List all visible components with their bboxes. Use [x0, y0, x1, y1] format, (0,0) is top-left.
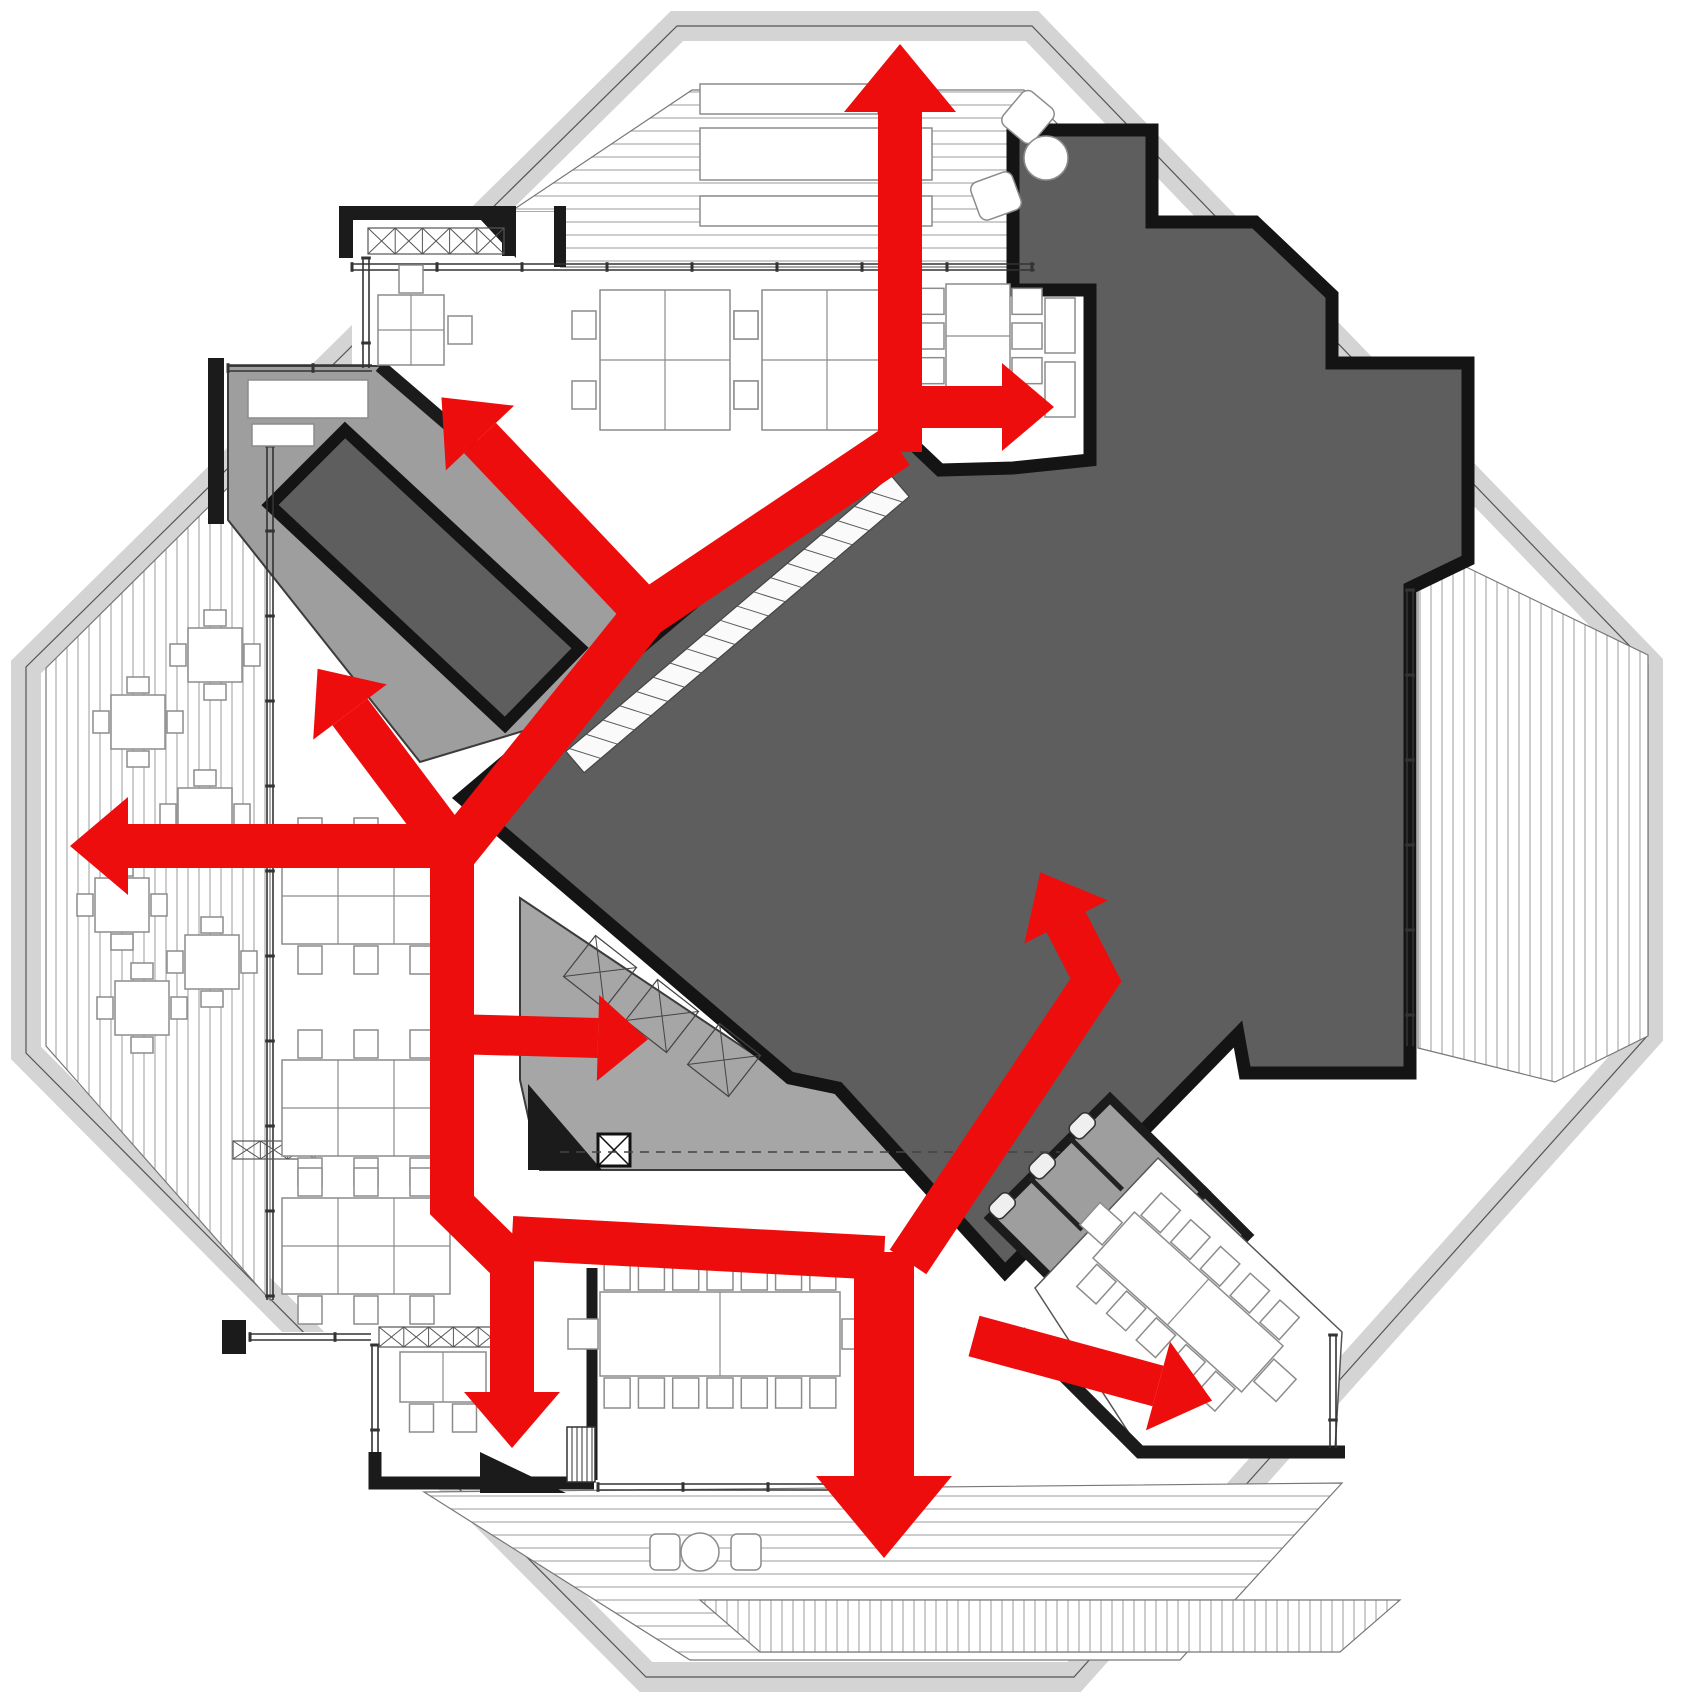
- desk: [252, 424, 314, 446]
- chair: [734, 381, 758, 409]
- desks-north-1: [572, 290, 758, 430]
- chair: [399, 265, 423, 293]
- floor-plan-canvas: [0, 0, 1700, 1701]
- chair: [298, 1168, 322, 1196]
- chair: [448, 316, 472, 344]
- chair: [354, 1296, 378, 1324]
- chair: [131, 963, 153, 979]
- chair: [204, 684, 226, 700]
- chair: [97, 997, 113, 1019]
- chair: [568, 1319, 598, 1349]
- chair: [734, 311, 758, 339]
- chair: [298, 1030, 322, 1058]
- chair: [167, 711, 183, 733]
- chair: [204, 610, 226, 626]
- terrace-south-lower-strip: [700, 1600, 1400, 1652]
- chair: [234, 804, 250, 826]
- chair: [131, 1037, 153, 1053]
- chair: [638, 1378, 664, 1408]
- terrace-west: [46, 446, 270, 1300]
- chair: [354, 946, 378, 974]
- chair: [1012, 323, 1042, 349]
- chair: [707, 1378, 733, 1408]
- flow-trunk-south-corridor: [512, 1238, 884, 1258]
- chair: [298, 946, 322, 974]
- chair: [298, 1296, 322, 1324]
- chair: [170, 644, 186, 666]
- chair: [410, 1296, 434, 1324]
- chair: [201, 991, 223, 1007]
- chair: [171, 997, 187, 1019]
- stair-south-exit: [567, 1427, 595, 1482]
- chair: [241, 951, 257, 973]
- chair: [673, 1378, 699, 1408]
- desks-west-2: [282, 1030, 450, 1186]
- lounge-table: [1024, 136, 1068, 180]
- terrace-chair: [650, 1534, 680, 1570]
- chair: [572, 311, 596, 339]
- chair: [810, 1378, 836, 1408]
- chair: [127, 677, 149, 693]
- table-north-east: [914, 284, 1042, 388]
- table-conference: [568, 1260, 872, 1408]
- chair: [354, 1030, 378, 1058]
- chair: [93, 711, 109, 733]
- chair: [151, 894, 167, 916]
- desk: [248, 380, 368, 418]
- chair: [410, 1404, 434, 1432]
- terrace-chair: [731, 1534, 761, 1570]
- chair: [111, 934, 133, 950]
- chair: [77, 894, 93, 916]
- desks-west-3: [282, 1168, 450, 1324]
- chair: [194, 770, 216, 786]
- chair: [1012, 288, 1042, 314]
- terrace-table: [681, 1533, 719, 1571]
- desk: [1045, 298, 1075, 353]
- chair: [453, 1404, 477, 1432]
- chair: [604, 1378, 630, 1408]
- terrace-east: [1418, 565, 1648, 1082]
- chair: [167, 951, 183, 973]
- shaft-symbol: [598, 1134, 630, 1166]
- chair: [244, 644, 260, 666]
- chair: [201, 917, 223, 933]
- chair: [160, 804, 176, 826]
- chair: [127, 751, 149, 767]
- chair: [741, 1378, 767, 1408]
- chair: [776, 1378, 802, 1408]
- chair: [354, 1168, 378, 1196]
- chair: [572, 381, 596, 409]
